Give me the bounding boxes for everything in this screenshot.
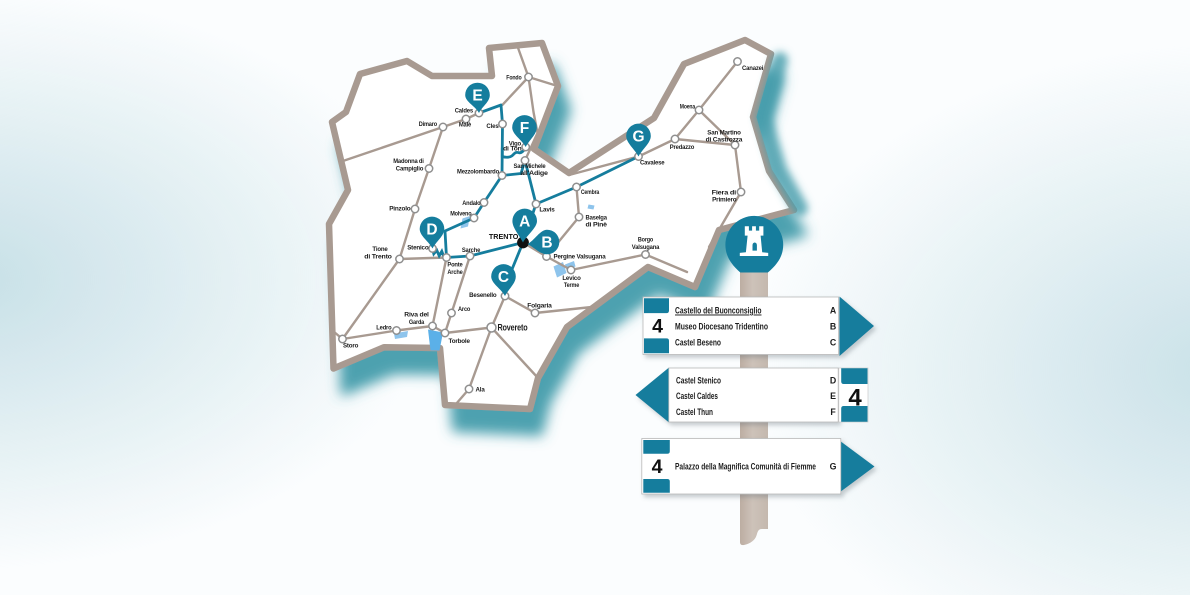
svg-text:di Ton: di Ton	[503, 146, 521, 153]
svg-text:Besenello: Besenello	[469, 292, 497, 299]
svg-text:di Castrozza: di Castrozza	[706, 136, 743, 143]
svg-text:C: C	[498, 269, 509, 286]
svg-text:Arche: Arche	[447, 269, 463, 276]
svg-text:4: 4	[652, 456, 663, 478]
svg-text:Ponte: Ponte	[447, 262, 463, 269]
svg-text:Castel Beseno: Castel Beseno	[675, 338, 721, 349]
svg-text:TRENTO: TRENTO	[489, 232, 519, 241]
svg-text:Madonna di: Madonna di	[393, 158, 424, 165]
svg-text:Caldes: Caldes	[455, 107, 474, 114]
svg-text:all'Adige: all'Adige	[520, 170, 548, 177]
svg-text:A: A	[830, 306, 837, 316]
svg-text:Dimaro: Dimaro	[419, 121, 437, 128]
svg-text:Canazei: Canazei	[742, 65, 764, 72]
svg-text:F: F	[520, 120, 529, 137]
svg-text:Cembra: Cembra	[581, 189, 600, 196]
svg-text:Palazzo della Magnifica Comuni: Palazzo della Magnifica Comunità di Fiem…	[675, 461, 816, 472]
svg-text:Cavalese: Cavalese	[640, 160, 665, 167]
svg-text:Levico: Levico	[562, 275, 580, 282]
svg-text:Garda: Garda	[409, 319, 425, 326]
svg-text:Pergine Valsugana: Pergine Valsugana	[554, 254, 606, 261]
svg-text:Terme: Terme	[564, 282, 580, 289]
svg-text:Baselga: Baselga	[586, 215, 608, 222]
svg-text:Mezzolombardo: Mezzolombardo	[457, 169, 499, 176]
svg-text:Borgo: Borgo	[638, 237, 653, 244]
svg-text:E: E	[830, 391, 836, 401]
svg-text:D: D	[426, 222, 437, 239]
svg-text:Ledro: Ledro	[376, 324, 391, 331]
svg-text:Rovereto: Rovereto	[498, 323, 529, 333]
svg-text:San Martino: San Martino	[707, 129, 741, 136]
svg-text:E: E	[472, 88, 482, 105]
svg-text:Fiera di: Fiera di	[712, 190, 737, 197]
svg-text:F: F	[830, 407, 836, 417]
svg-text:G: G	[632, 129, 644, 146]
svg-text:A: A	[519, 214, 530, 231]
svg-text:Campiglio: Campiglio	[396, 166, 424, 173]
svg-text:B: B	[541, 235, 552, 252]
svg-text:Castel Caldes: Castel Caldes	[676, 391, 718, 402]
svg-text:4: 4	[848, 385, 862, 412]
svg-text:Valsugana: Valsugana	[632, 244, 660, 251]
svg-text:Riva del: Riva del	[404, 312, 429, 319]
svg-text:Cles: Cles	[486, 123, 499, 130]
svg-text:Arco: Arco	[458, 306, 470, 313]
svg-text:Museo Diocesano Tridentino: Museo Diocesano Tridentino	[675, 322, 768, 333]
svg-text:Fondo: Fondo	[506, 74, 521, 81]
svg-text:B: B	[830, 322, 836, 332]
svg-text:Castel Stenico: Castel Stenico	[676, 375, 721, 386]
svg-text:Lavis: Lavis	[539, 207, 555, 214]
svg-text:Tione: Tione	[372, 246, 388, 253]
svg-text:Andalo: Andalo	[462, 200, 480, 207]
svg-text:Pinzolo: Pinzolo	[389, 206, 410, 213]
svg-text:di Pinè: di Pinè	[586, 222, 608, 229]
svg-text:Castel Thun: Castel Thun	[676, 407, 713, 418]
svg-text:C: C	[830, 338, 837, 348]
svg-text:Moena: Moena	[680, 104, 696, 111]
svg-text:4: 4	[652, 315, 663, 337]
svg-text:Ala: Ala	[476, 387, 486, 394]
svg-text:D: D	[830, 375, 836, 385]
svg-text:Malè: Malè	[459, 121, 472, 128]
svg-text:Predazzo: Predazzo	[670, 144, 695, 151]
svg-text:Primiero: Primiero	[712, 197, 737, 204]
svg-text:Storo: Storo	[343, 343, 358, 350]
svg-text:Folgaria: Folgaria	[527, 303, 552, 310]
svg-text:Torbole: Torbole	[449, 338, 471, 345]
svg-text:Molveno: Molveno	[450, 211, 471, 218]
svg-text:G: G	[830, 461, 837, 471]
svg-text:Stenico: Stenico	[407, 244, 428, 251]
svg-text:di Trento: di Trento	[364, 254, 392, 261]
svg-text:Castello del Buonconsiglio: Castello del Buonconsiglio	[675, 306, 762, 317]
svg-text:Sarche: Sarche	[462, 247, 481, 254]
